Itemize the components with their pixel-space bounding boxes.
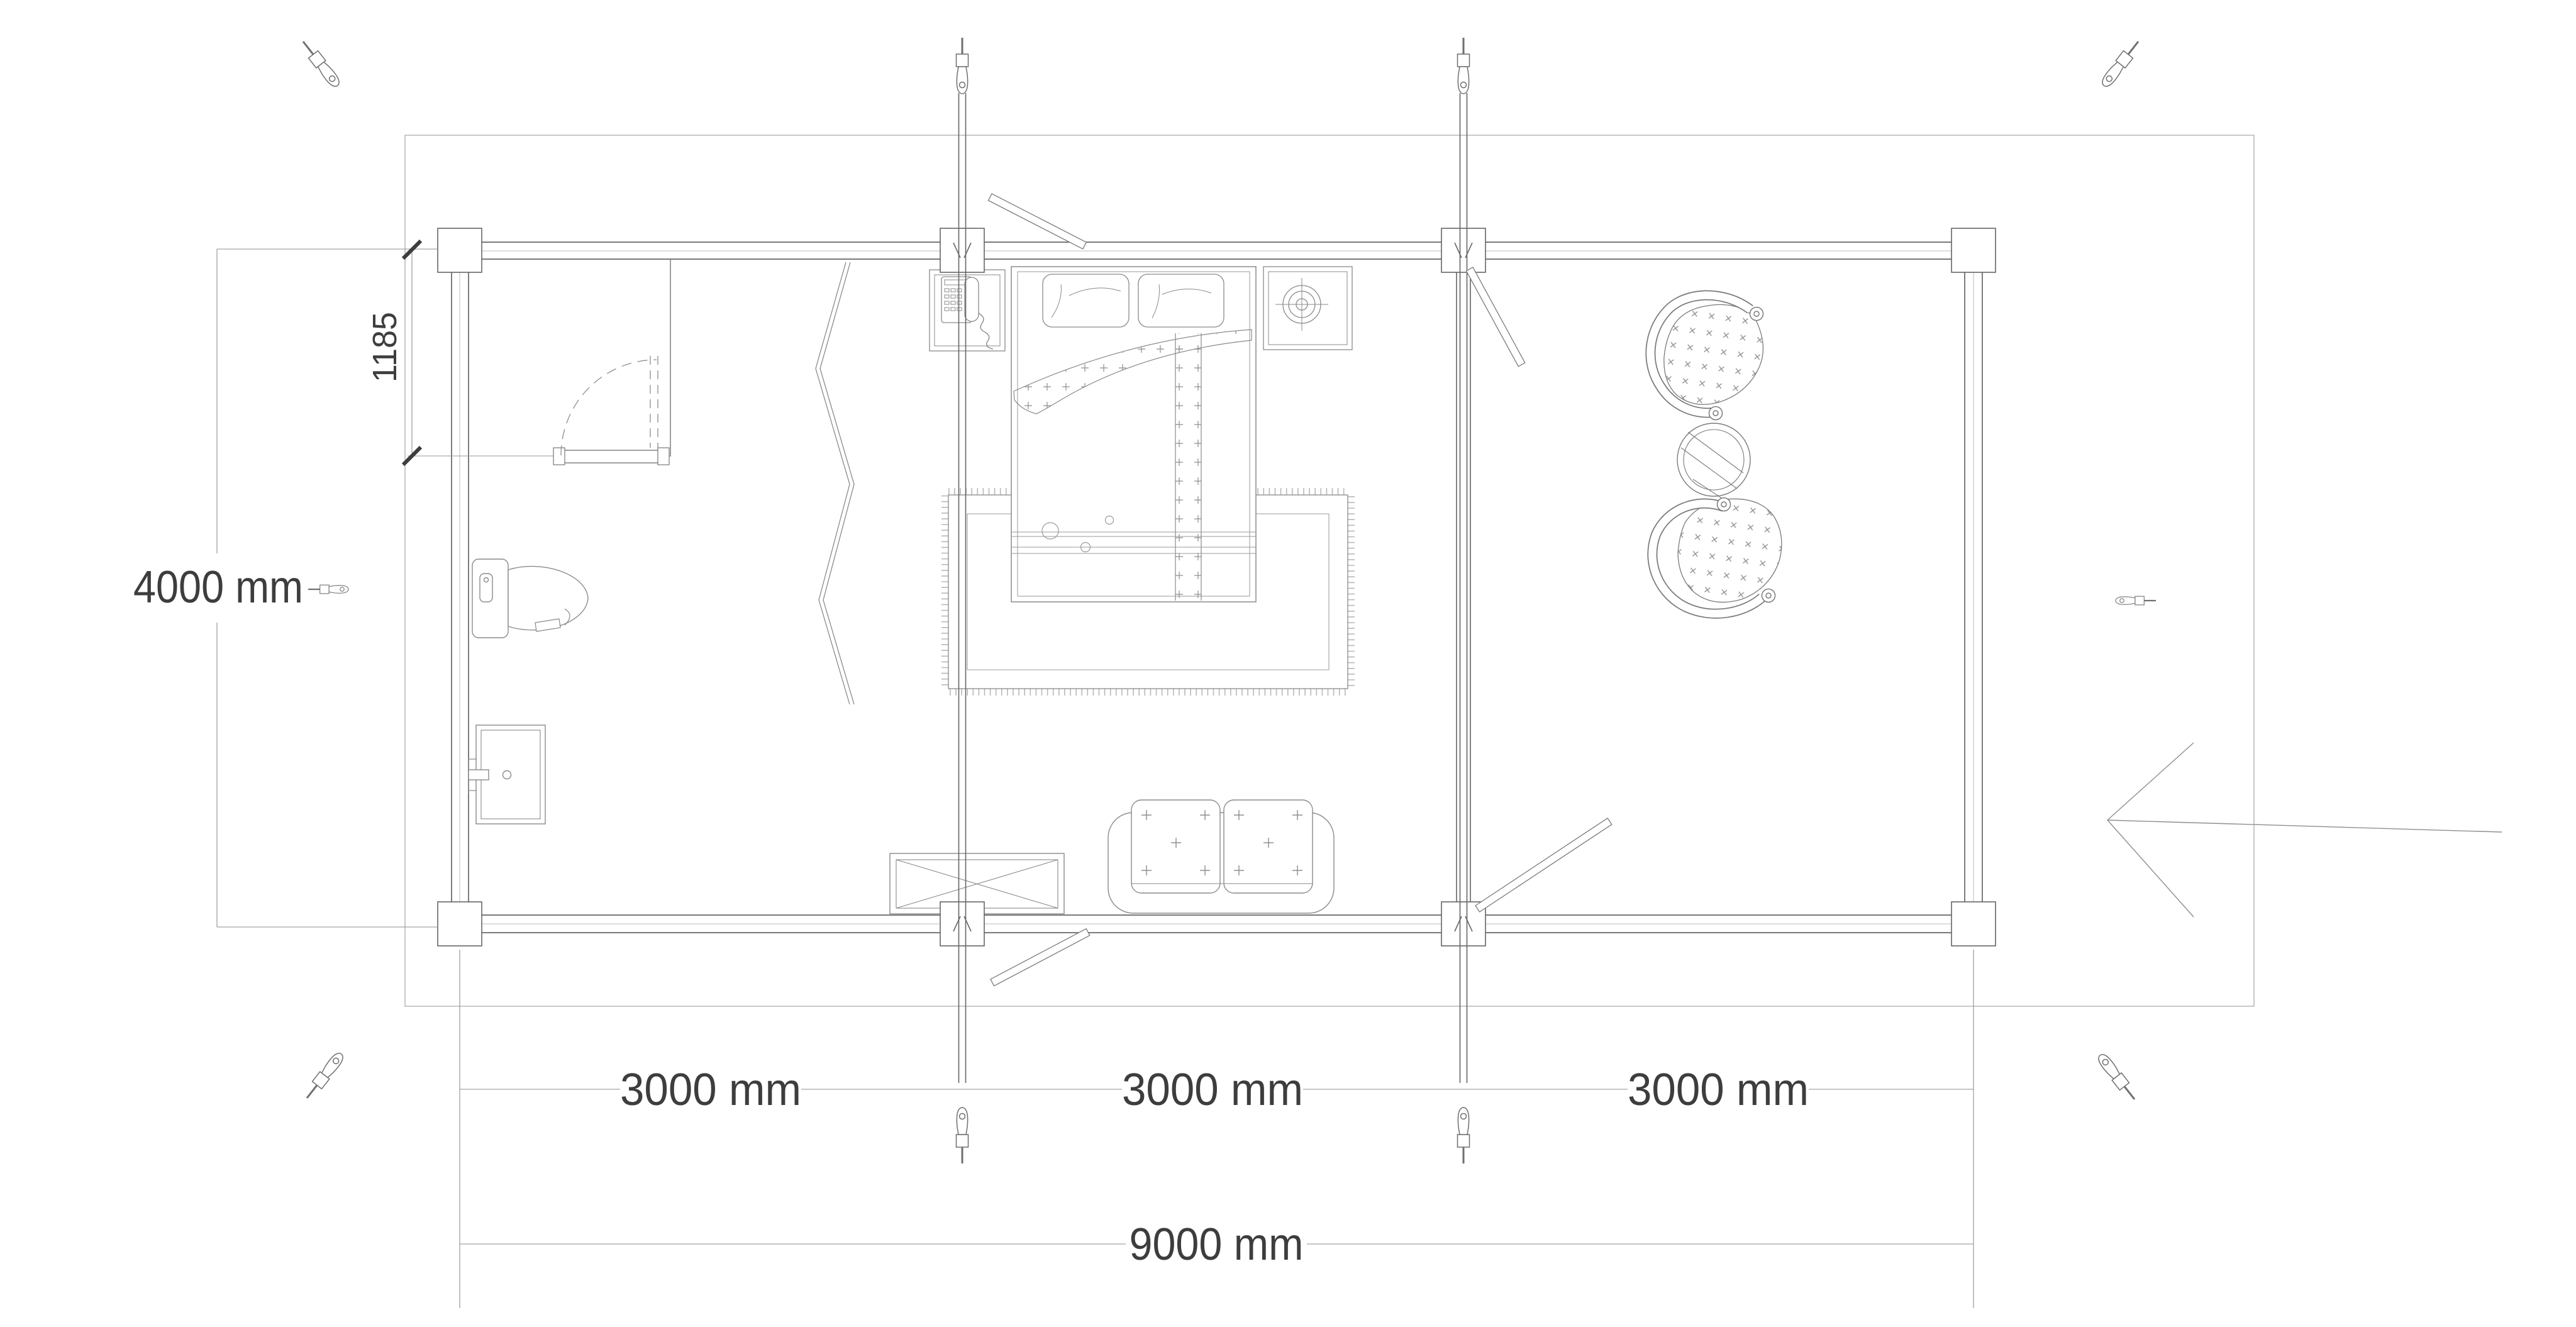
sofa <box>1108 800 1334 913</box>
dim-label-bay-2: 3000 mm <box>1122 1065 1303 1115</box>
pillow <box>1043 274 1129 327</box>
dimension-labels: 4000 mm 1185 3000 mm 3000 mm 3000 mm 900… <box>133 312 1809 1270</box>
dim-label-door-offset: 1185 <box>366 312 404 382</box>
door-swing-arc <box>561 360 657 455</box>
post <box>940 228 984 272</box>
floor-plan-canvas: 4000 mm 1185 3000 mm 3000 mm 3000 mm 900… <box>0 0 2576 1327</box>
eye-bolt-icon <box>2096 1052 2140 1103</box>
post <box>940 902 984 946</box>
bed <box>1011 267 1256 602</box>
closet <box>408 259 670 465</box>
scroll-end-icon <box>1750 308 1763 321</box>
phone-handset-icon <box>965 277 979 321</box>
dim-label-bay-3: 3000 mm <box>1628 1065 1809 1115</box>
eye-bolt-icon <box>303 1050 347 1102</box>
pillow <box>1138 274 1224 327</box>
window-leaf-icon <box>991 929 1090 986</box>
nightstand-left <box>930 270 1005 351</box>
floor-plan-page: 4000 mm 1185 3000 mm 3000 mm 3000 mm 900… <box>0 0 2576 1327</box>
partition-wall <box>1457 259 1470 915</box>
folding-screen <box>816 262 854 704</box>
blanket-runner <box>1175 333 1201 601</box>
door-leaf-icon <box>1466 267 1524 367</box>
storm-brace-rod-icon <box>1455 38 1472 1163</box>
scroll-end-icon <box>1762 589 1775 602</box>
sink <box>469 725 545 824</box>
dim-label-bay-1: 3000 mm <box>620 1065 801 1115</box>
entrance-arrow-icon <box>2107 743 2502 917</box>
post <box>438 228 482 272</box>
dim-label-total: 9000 mm <box>1130 1219 1304 1270</box>
post <box>1951 902 1996 946</box>
round-table <box>1677 423 1750 500</box>
faucet-icon <box>469 770 489 780</box>
scroll-end-icon <box>1718 498 1731 511</box>
post <box>438 902 482 946</box>
post <box>1951 228 1996 272</box>
door-leaf-icon <box>1475 818 1612 912</box>
eye-bolt-icon <box>2099 38 2143 89</box>
nightstand-right <box>1263 267 1352 350</box>
post <box>1441 228 1485 272</box>
eye-bolt-icon <box>2116 596 2156 605</box>
eye-bolt-icon <box>308 585 348 594</box>
eye-bolt-icon <box>299 38 343 89</box>
armchair-top <box>1650 295 1763 419</box>
armchair-bottom <box>1652 498 1782 614</box>
toilet <box>472 559 588 638</box>
dim-label-depth: 4000 mm <box>133 562 303 613</box>
scroll-end-icon <box>1709 407 1723 420</box>
closet-door <box>553 356 669 465</box>
window-leaf-icon <box>989 194 1087 249</box>
